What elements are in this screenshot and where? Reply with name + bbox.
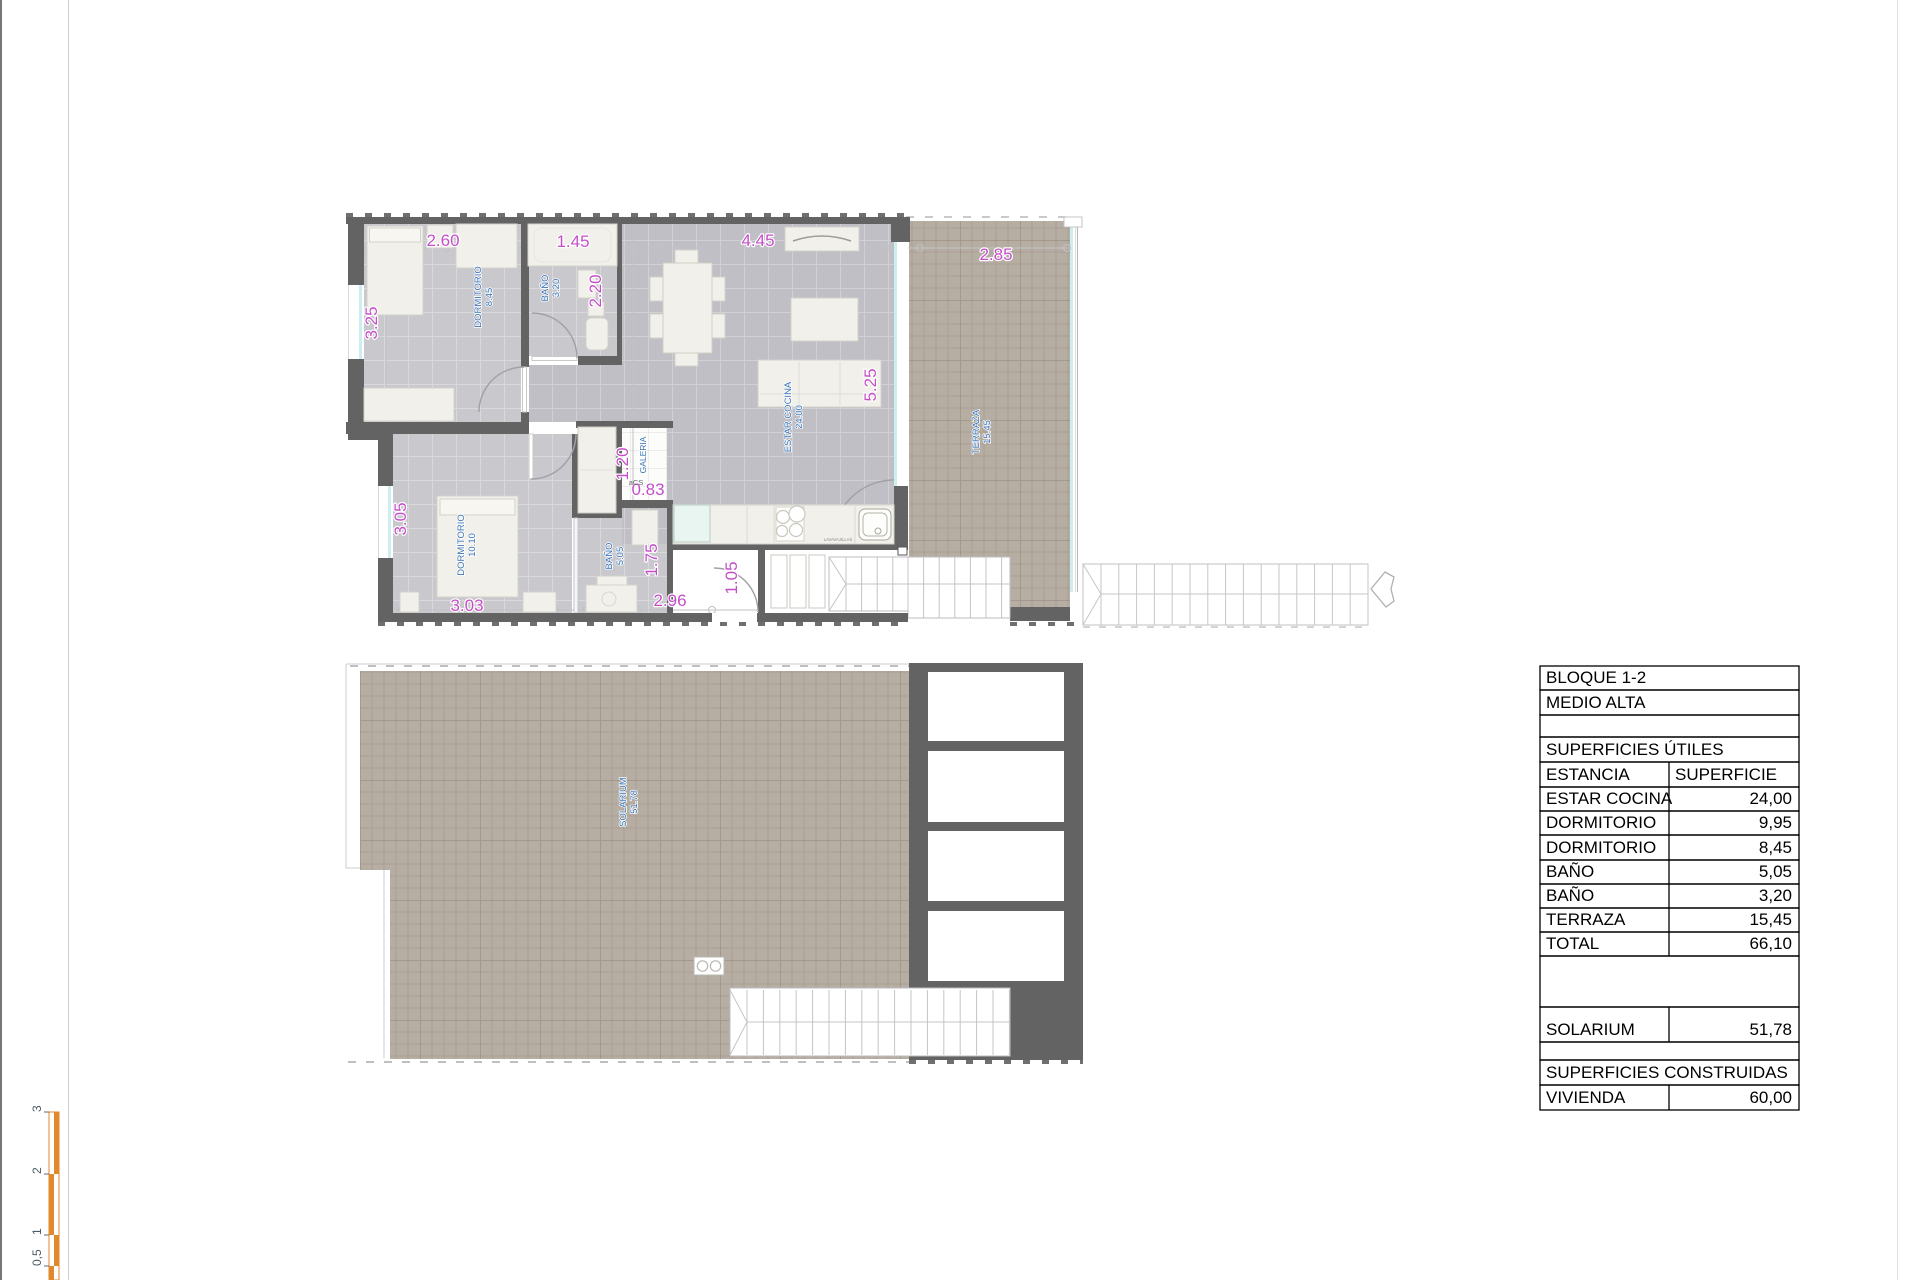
svg-text:15.45: 15.45 xyxy=(982,420,993,444)
svg-text:3.05: 3.05 xyxy=(391,502,410,535)
svg-text:LAVAVAJILLAS: LAVAVAJILLAS xyxy=(824,537,853,542)
svg-text:5.05: 5.05 xyxy=(615,547,626,566)
svg-text:DORMITORIO: DORMITORIO xyxy=(1546,838,1656,857)
svg-text:1.20: 1.20 xyxy=(613,447,632,480)
svg-text:2.60: 2.60 xyxy=(426,231,459,250)
svg-text:TERRAZA: TERRAZA xyxy=(971,409,982,454)
svg-text:9,95: 9,95 xyxy=(1759,813,1792,832)
svg-text:BAÑO: BAÑO xyxy=(1546,862,1594,881)
svg-text:8.45: 8.45 xyxy=(484,288,495,307)
svg-text:5,05: 5,05 xyxy=(1759,862,1792,881)
svg-text:BAÑO: BAÑO xyxy=(1546,886,1594,905)
svg-text:1.05: 1.05 xyxy=(722,561,741,594)
svg-text:10.10: 10.10 xyxy=(467,533,478,557)
svg-text:15,45: 15,45 xyxy=(1749,910,1792,929)
svg-text:3.25: 3.25 xyxy=(362,306,381,339)
svg-text:3.20: 3.20 xyxy=(551,279,562,298)
svg-text:8,45: 8,45 xyxy=(1759,838,1792,857)
svg-text:BAÑO: BAÑO xyxy=(604,543,615,570)
svg-text:SUPERFICIES CONSTRUIDAS: SUPERFICIES CONSTRUIDAS xyxy=(1546,1063,1788,1082)
svg-text:2: 2 xyxy=(30,1167,44,1174)
svg-text:DORMITORIO: DORMITORIO xyxy=(473,266,484,328)
svg-text:1.75: 1.75 xyxy=(642,543,661,576)
svg-text:DORMITORIO: DORMITORIO xyxy=(456,514,467,576)
svg-text:1: 1 xyxy=(30,1228,44,1235)
svg-text:MEDIO ALTA: MEDIO ALTA xyxy=(1546,693,1646,712)
svg-text:ESTAR COCINA: ESTAR COCINA xyxy=(783,381,794,452)
svg-text:3.03: 3.03 xyxy=(450,596,483,615)
svg-text:3: 3 xyxy=(30,1105,44,1112)
svg-text:51,78: 51,78 xyxy=(1749,1020,1792,1039)
svg-text:2.85: 2.85 xyxy=(979,245,1012,264)
svg-text:ESTANCIA: ESTANCIA xyxy=(1546,765,1630,784)
svg-text:3,20: 3,20 xyxy=(1759,886,1792,905)
svg-text:5.25: 5.25 xyxy=(861,368,880,401)
svg-text:2.96: 2.96 xyxy=(653,591,686,610)
svg-text:aCS: aCS xyxy=(629,478,644,487)
svg-text:VIVIENDA: VIVIENDA xyxy=(1546,1088,1626,1107)
svg-text:1.45: 1.45 xyxy=(556,232,589,251)
svg-text:GALERIA: GALERIA xyxy=(638,436,648,473)
svg-text:SUPERFICIE: SUPERFICIE xyxy=(1675,765,1777,784)
svg-text:0,5: 0,5 xyxy=(30,1249,44,1266)
svg-text:60,00: 60,00 xyxy=(1749,1088,1792,1107)
svg-text:BLOQUE 1-2: BLOQUE 1-2 xyxy=(1546,668,1646,687)
svg-text:66,10: 66,10 xyxy=(1749,934,1792,953)
svg-text:24,00: 24,00 xyxy=(1749,789,1792,808)
svg-text:24.00: 24.00 xyxy=(794,405,805,429)
svg-text:DORMITORIO: DORMITORIO xyxy=(1546,813,1656,832)
svg-text:SOLARIUM: SOLARIUM xyxy=(618,777,629,827)
svg-text:BAÑO: BAÑO xyxy=(540,275,551,302)
svg-text:2.20: 2.20 xyxy=(586,274,605,307)
svg-text:4.45: 4.45 xyxy=(741,231,774,250)
svg-text:ESTAR COCINA: ESTAR COCINA xyxy=(1546,789,1673,808)
svg-text:TOTAL: TOTAL xyxy=(1546,934,1599,953)
svg-text:51.78: 51.78 xyxy=(629,790,640,814)
svg-text:SOLARIUM: SOLARIUM xyxy=(1546,1020,1635,1039)
svg-text:SUPERFICIES ÚTILES: SUPERFICIES ÚTILES xyxy=(1546,740,1724,759)
svg-text:TERRAZA: TERRAZA xyxy=(1546,910,1626,929)
